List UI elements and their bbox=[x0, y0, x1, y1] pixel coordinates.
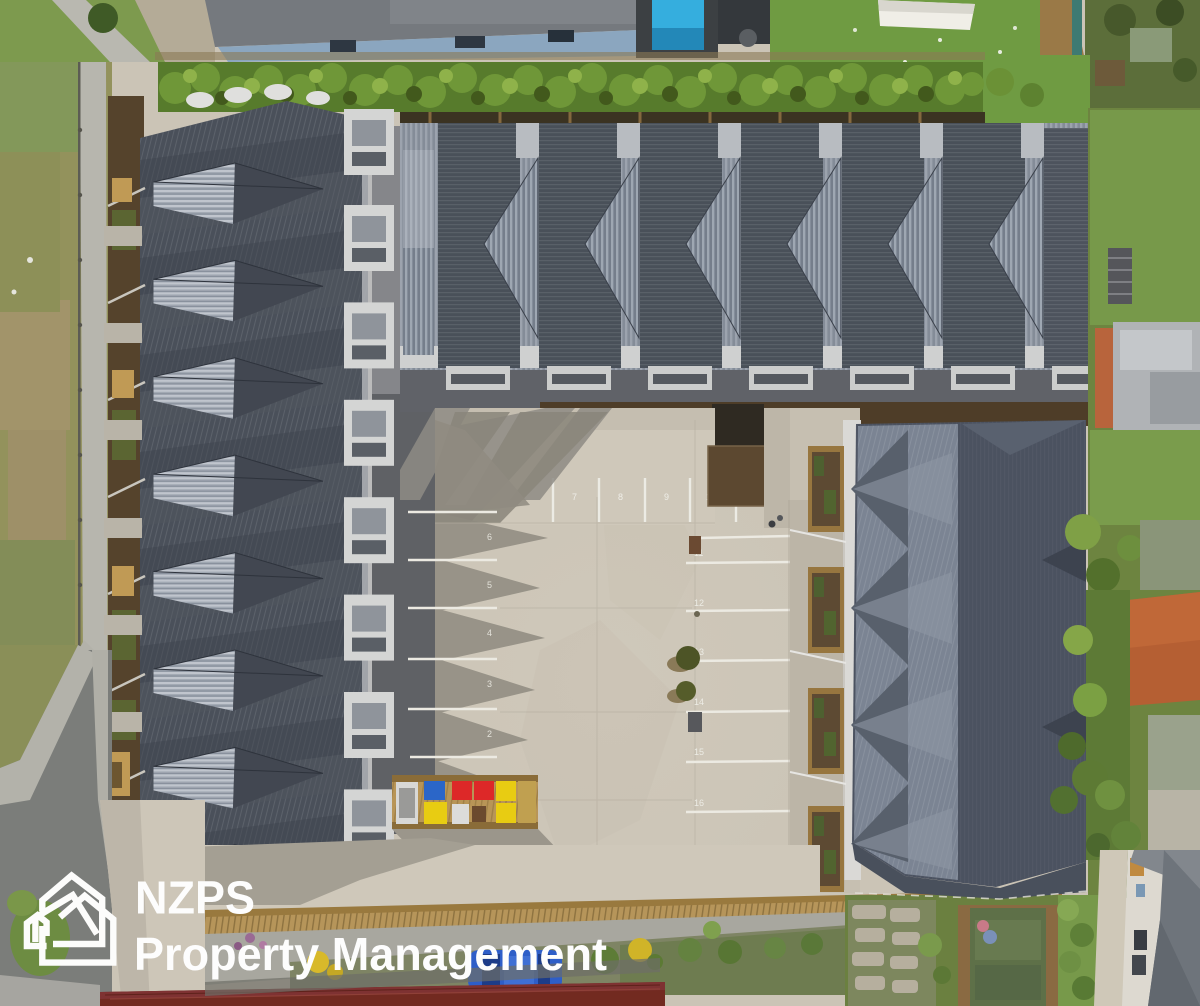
svg-text:9: 9 bbox=[664, 492, 669, 502]
svg-text:12: 12 bbox=[694, 598, 704, 608]
svg-text:8: 8 bbox=[618, 492, 623, 502]
svg-text:15: 15 bbox=[694, 747, 704, 757]
svg-text:4: 4 bbox=[487, 628, 492, 638]
svg-text:16: 16 bbox=[694, 798, 704, 808]
svg-text:6: 6 bbox=[487, 532, 492, 542]
svg-text:NZPS: NZPS bbox=[135, 871, 255, 923]
svg-text:14: 14 bbox=[694, 697, 704, 707]
svg-text:2: 2 bbox=[487, 729, 492, 739]
svg-text:Property Management: Property Management bbox=[134, 928, 607, 980]
svg-text:3: 3 bbox=[487, 679, 492, 689]
svg-text:7: 7 bbox=[572, 492, 577, 502]
svg-text:5: 5 bbox=[487, 580, 492, 590]
